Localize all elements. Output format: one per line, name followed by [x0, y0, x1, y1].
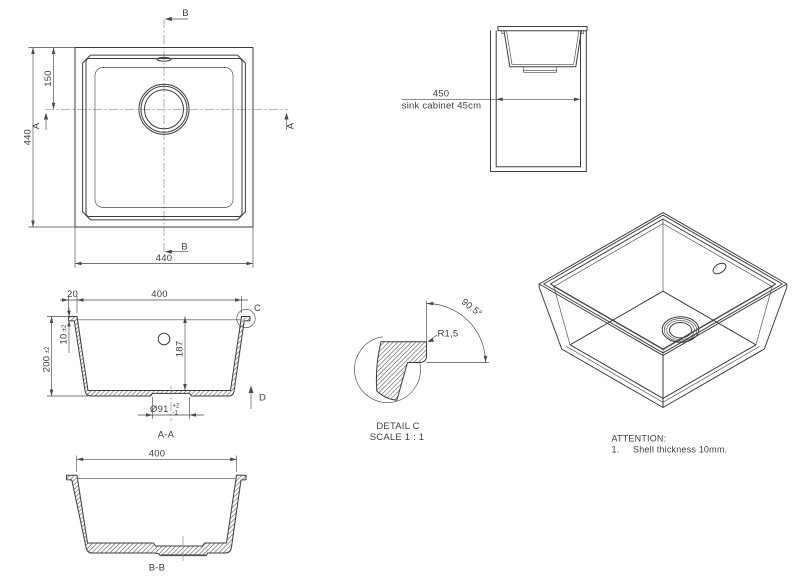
attention-note: ATTENTION: 1. Shell thickness 10mm. [612, 434, 728, 455]
dim-aa-depth-tol: ±2 [45, 346, 51, 353]
iso-overflow-hole [711, 261, 728, 276]
dim-drain-offset-150: 150 [43, 48, 55, 110]
dim-aa-rim-thickness-10: 10 ±2 [58, 308, 71, 353]
cabinet-side-view: 450 sink cabinet 45cm [402, 27, 587, 172]
dim-aa-rim-width: 20 [67, 289, 78, 300]
dim-bb-width-value: 400 [149, 449, 165, 460]
section-a-right-label: A [286, 122, 297, 129]
section-b-bottom-label: B [181, 242, 188, 253]
sink-drawing-canvas: 440 150 440 A A [0, 0, 800, 579]
dim-aa-drain-tol-minus: -1 [173, 411, 179, 417]
section-marker-b-top: B [165, 8, 189, 21]
dim-aa-inner-depth-value: 187 [175, 341, 186, 357]
dim-aa-depth-value: 200 [41, 356, 52, 372]
section-marker-a-left: A [31, 113, 48, 131]
detail-c-scale: SCALE 1 : 1 [370, 432, 424, 443]
dim-aa-rim-thickness-tol: ±2 [62, 324, 68, 331]
cabinet-drain-boss [524, 67, 557, 72]
detail-c-view: R1,5 90.5° DETAIL C SCALE 1 : 1 [354, 297, 489, 443]
dim-width-value: 440 [156, 253, 172, 264]
dim-aa-20-400: 20 400 [60, 289, 248, 313]
section-b-top-label: B [182, 8, 189, 19]
direction-marker-d: D [249, 386, 266, 410]
dim-aa-drain-tol-plus: +2 [173, 404, 181, 410]
cabinet-bottom [491, 167, 587, 172]
aa-overflow-hole [158, 333, 170, 345]
dim-aa-rim-thickness-value: 10 [58, 334, 69, 345]
dim-cabinet-value: 450 [433, 89, 449, 100]
detail-rim-cut [376, 342, 426, 400]
dim-cabinet-450: 450 sink cabinet 45cm [402, 89, 581, 112]
cabinet-bowl-inner [507, 31, 579, 65]
cabinet-caption: sink cabinet 45cm [402, 101, 481, 112]
detail-radius-label: R1,5 [438, 329, 459, 340]
aa-shell-cut [69, 317, 251, 397]
isometric-view [539, 213, 787, 408]
cabinet-bowl-outer [504, 31, 581, 67]
dim-aa-opening-width: 400 [151, 289, 167, 300]
cabinet-left-panel [491, 31, 497, 172]
section-b-b: 400 B-B [67, 449, 247, 574]
cabinet-right-panel [581, 31, 587, 172]
attention-item-number: 1. [612, 445, 620, 455]
dim-aa-drain-value: Ø91 [150, 404, 169, 415]
bb-shell-cut [67, 475, 247, 555]
dim-height-value: 440 [23, 129, 34, 145]
direction-d-label: D [259, 393, 266, 404]
section-a-left-label: A [31, 122, 42, 129]
attention-item-text: Shell thickness 10mm. [633, 445, 727, 455]
attention-title: ATTENTION: [612, 434, 667, 444]
section-a-a: 20 400 200 ±2 10 ±2 187 [41, 289, 266, 441]
detail-c-marker-label: C [254, 303, 261, 314]
dim-drain-offset-value: 150 [43, 70, 54, 86]
section-marker-b-bottom: B [165, 242, 188, 254]
technical-drawing-sheet: 440 150 440 A A [0, 0, 800, 579]
section-bb-title: B-B [149, 563, 165, 574]
detail-c-title: DETAIL C [376, 421, 419, 432]
top-view: 440 150 440 A A [23, 8, 297, 268]
section-marker-a-right: A [284, 113, 296, 131]
dim-aa-inner-depth-187: 187 [175, 317, 187, 391]
section-aa-title: A-A [158, 430, 175, 441]
dim-bb-400: 400 [77, 449, 237, 473]
countertop [498, 27, 587, 31]
